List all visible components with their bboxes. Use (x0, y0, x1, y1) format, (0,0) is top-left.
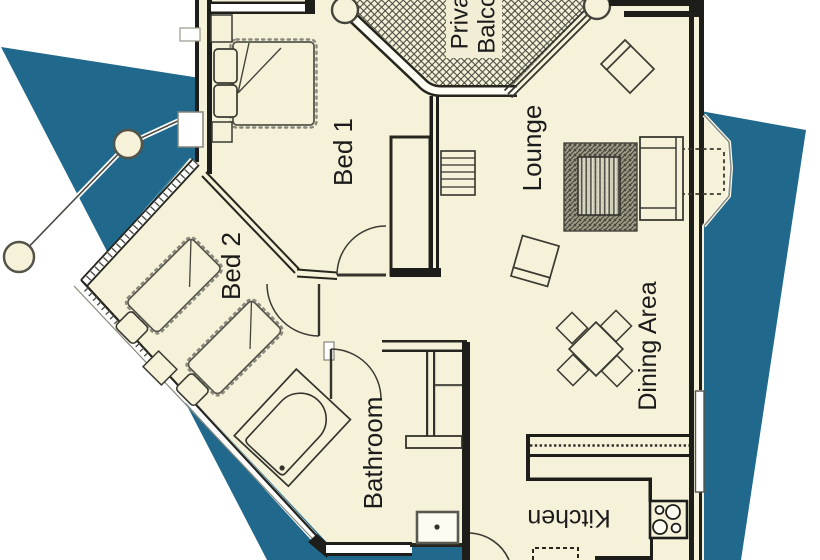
svg-text:Private: Private (447, 0, 474, 49)
svg-text:Lounge: Lounge (517, 105, 547, 192)
svg-text:Kitchen: Kitchen (527, 504, 610, 532)
svg-text:Balcony: Balcony (474, 0, 501, 54)
svg-text:Bathroom: Bathroom (358, 397, 388, 510)
svg-text:Bed 2: Bed 2 (216, 232, 246, 300)
svg-text:Dining Area: Dining Area (634, 281, 662, 410)
svg-text:Bed 1: Bed 1 (328, 118, 358, 186)
